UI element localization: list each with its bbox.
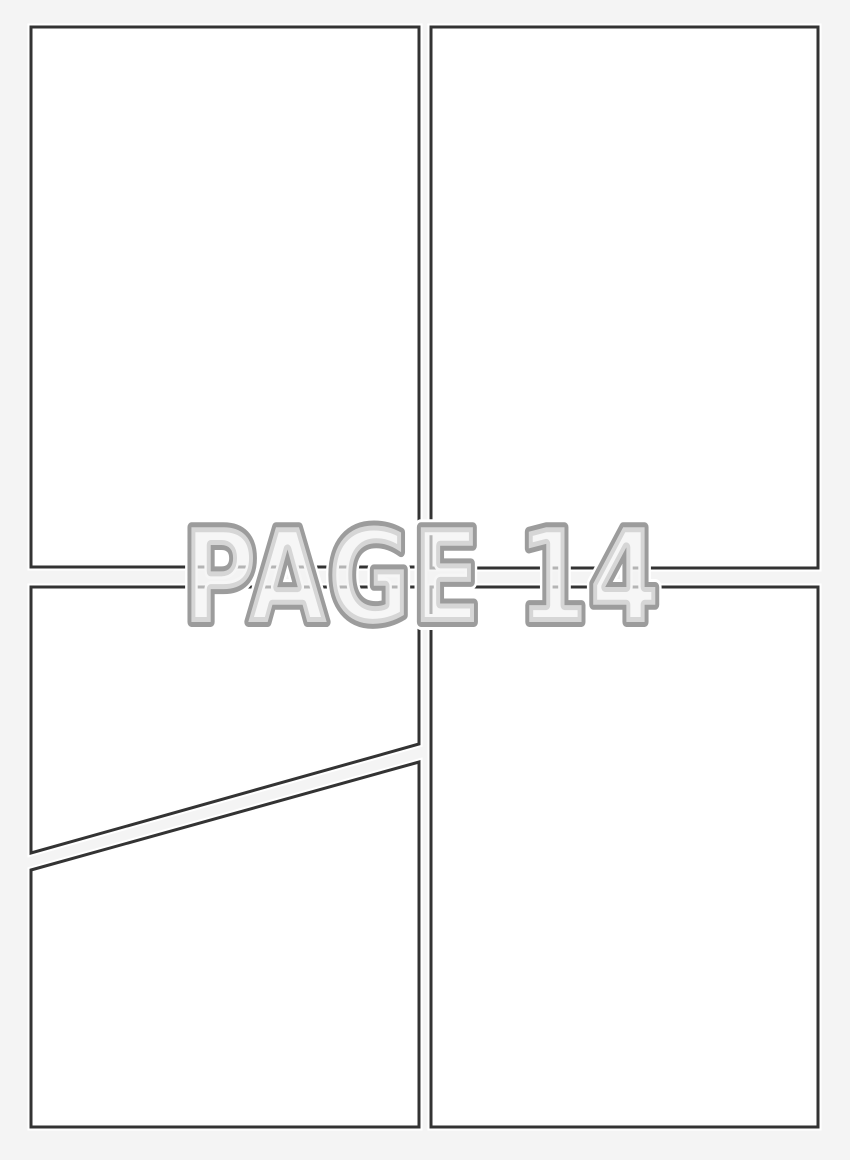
panel-grid: PAGE 14 PAGE 14 <box>0 0 850 1160</box>
panel-bottom-right <box>431 587 818 1127</box>
panel-top-right <box>431 27 818 568</box>
comic-page-template: PAGE 14 PAGE 14 <box>0 0 850 1160</box>
panel-top-left <box>31 27 419 567</box>
watermark-text: PAGE 14 <box>182 501 660 653</box>
page-number-watermark: PAGE 14 PAGE 14 <box>182 501 660 653</box>
